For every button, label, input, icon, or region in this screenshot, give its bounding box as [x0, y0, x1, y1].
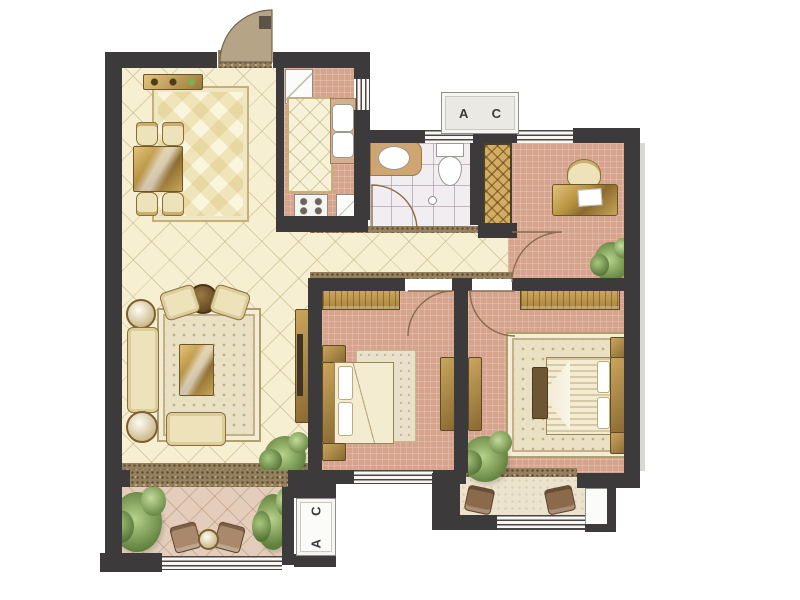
kitchen-rug [287, 97, 333, 193]
wall [273, 52, 365, 68]
wall [512, 278, 624, 291]
balcony-left-railing [162, 556, 282, 570]
entrance-threshold [218, 50, 272, 68]
floor-drain [428, 196, 437, 205]
dining-chair [136, 192, 158, 216]
pillow [597, 397, 610, 429]
entrance-door-latch [259, 16, 271, 29]
master-dresser [468, 357, 482, 431]
sideboard [143, 74, 203, 90]
dining-chair [162, 122, 184, 146]
wall [308, 278, 405, 291]
wall [288, 470, 336, 487]
wall [105, 470, 130, 487]
nightstand [322, 443, 346, 461]
sofa [127, 327, 159, 413]
dining-chair [162, 192, 184, 216]
wall [308, 278, 322, 484]
wall [276, 216, 368, 232]
coffee-table [179, 344, 214, 396]
study-window [517, 130, 575, 143]
bedroom1-window [354, 470, 433, 484]
pillow [597, 361, 610, 393]
balcony-door-threshold [130, 470, 288, 487]
wall [452, 515, 497, 530]
wall [452, 278, 472, 291]
dining-chair [136, 122, 158, 146]
wall [470, 143, 483, 225]
ac-unit-top-label: A C [449, 106, 511, 121]
wall [585, 524, 616, 532]
wall [282, 487, 294, 565]
wall [577, 473, 640, 488]
bedroom1-dresser [440, 357, 455, 431]
tv [297, 334, 303, 396]
wall [100, 553, 162, 572]
pillow [338, 402, 353, 436]
balcony-table [198, 529, 219, 550]
study-plant [594, 242, 628, 282]
wall [366, 130, 425, 143]
toilet-tank [436, 143, 464, 157]
pillow [338, 366, 353, 400]
bench-sofa [166, 412, 226, 446]
ac-platform [585, 488, 609, 526]
wall [354, 52, 370, 79]
balcony-right-railing [497, 515, 585, 530]
wall [624, 140, 640, 473]
wall [105, 52, 122, 487]
ac-unit-bottom: A C [296, 498, 336, 556]
kitchen-sink-basin [332, 104, 354, 132]
dining-table [133, 146, 183, 192]
wall-outer-edge [640, 143, 645, 471]
kitchen-window [356, 79, 370, 110]
balcony-chair [464, 484, 496, 515]
wall [105, 487, 122, 557]
bed-foot-bench [532, 367, 548, 419]
wall [478, 223, 517, 238]
bathroom-sink [378, 146, 410, 170]
ac-unit-top: A C [441, 92, 519, 134]
stove [294, 194, 328, 218]
desk-paper [577, 188, 602, 207]
master-headboard [610, 357, 625, 435]
master-plant [462, 436, 508, 482]
kitchen-sink-basin [332, 132, 354, 158]
ac-unit-bottom-label: A C [309, 496, 324, 558]
wall [276, 66, 284, 218]
corner-table [126, 411, 158, 443]
floor-plan: A C A C [0, 0, 800, 600]
duct-shaft [483, 143, 512, 227]
nightstand [322, 345, 346, 363]
corner-table [126, 299, 156, 329]
wall [354, 110, 370, 220]
wall [454, 291, 468, 473]
